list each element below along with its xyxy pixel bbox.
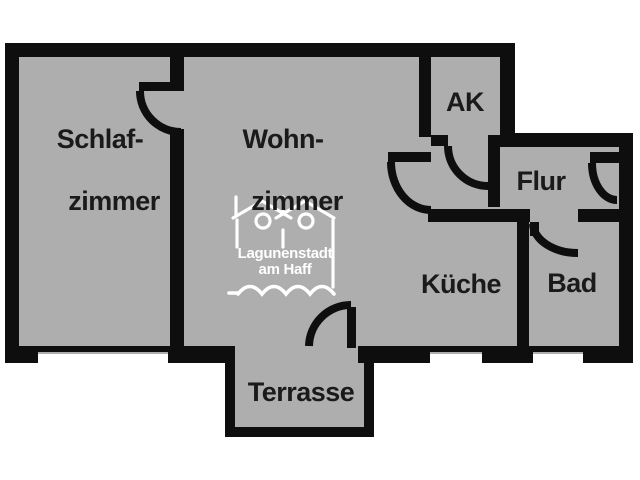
- wall-schlaf-wohn-lower: [170, 129, 184, 347]
- wall-bottom-seg2: [168, 346, 235, 363]
- room-label-schlafzimmer: Schlaf- zimmer: [30, 124, 170, 217]
- room-label-kueche: Küche: [391, 269, 531, 300]
- wall-top: [5, 43, 515, 57]
- door-leaf-terrasse: [347, 307, 356, 348]
- floorplan-canvas: Schlaf- zimmer Wohn- zimmer AK Flur Küch…: [0, 0, 640, 480]
- door-leaf-entrance: [590, 152, 619, 163]
- window-sill-kueche: [430, 346, 482, 352]
- window-sill-schlafzimmer: [38, 346, 168, 352]
- door-leaf-schlafzimmer: [139, 82, 184, 91]
- room-label-flur: Flur: [501, 166, 581, 197]
- schlafzimmer-line1: Schlaf-: [57, 124, 144, 154]
- window-sill-bad: [533, 346, 583, 352]
- wohnzimmer-line2: zimmer: [251, 186, 343, 216]
- door-leaf-ak: [431, 135, 448, 146]
- schlafzimmer-line2: zimmer: [68, 186, 160, 216]
- wall-schlaf-wohn-upper: [170, 57, 184, 86]
- wall-bottom-seg5: [583, 346, 633, 363]
- wohnzimmer-line1: Wohn-: [243, 124, 324, 154]
- wall-left: [5, 43, 19, 363]
- logo-text-line1: Lagunenstadt: [215, 246, 355, 262]
- floorplan-drawing: [0, 0, 640, 480]
- wall-flur-top: [500, 133, 633, 147]
- wall-flur-bottom-left: [428, 209, 530, 222]
- floor-areas: [12, 50, 626, 432]
- wall-vestibule-right: [488, 135, 500, 207]
- wall-bottom-seg4: [482, 346, 533, 363]
- wall-right: [619, 133, 633, 363]
- door-leaf-wohnzimmer-kueche: [388, 152, 431, 162]
- wall-flur-bottom-right: [578, 209, 633, 222]
- wall-bottom-seg1: [5, 346, 38, 363]
- room-label-bad: Bad: [512, 268, 632, 299]
- wall-terrasse-bottom: [225, 427, 374, 437]
- logo-text-line2: am Haff: [215, 262, 355, 278]
- room-label-wohnzimmer: Wohn- zimmer: [213, 124, 353, 217]
- room-label-ak: AK: [425, 87, 505, 118]
- room-label-terrasse: Terrasse: [231, 377, 371, 408]
